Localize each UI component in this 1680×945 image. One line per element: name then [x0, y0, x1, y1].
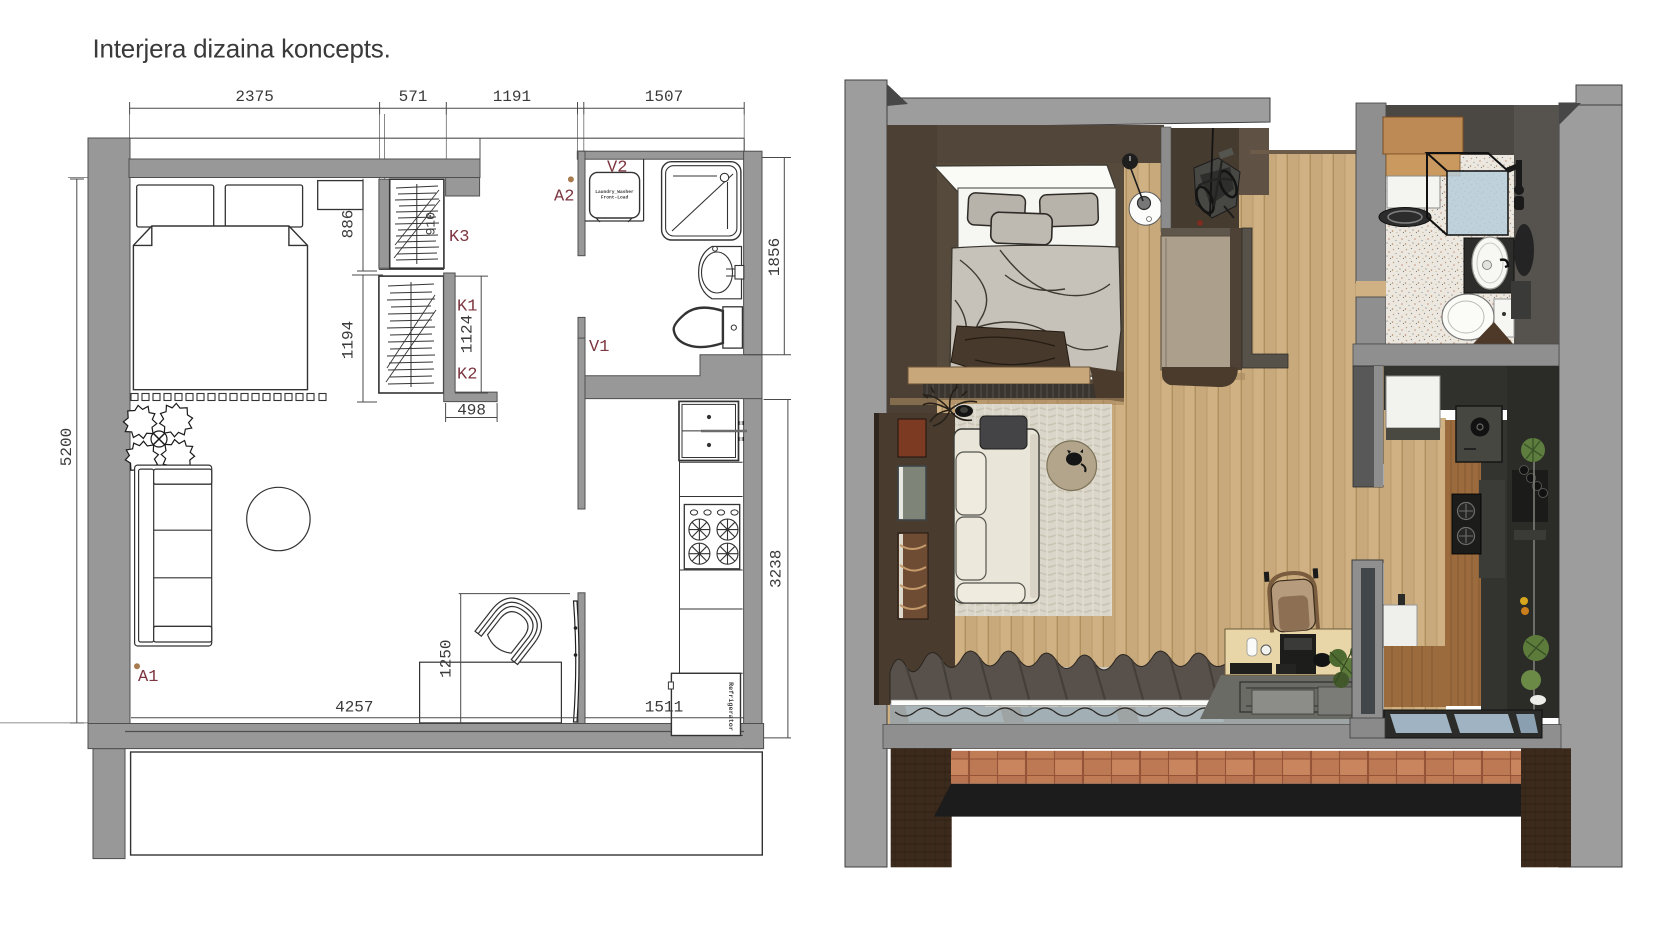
svg-text:4257: 4257 — [335, 699, 373, 717]
svg-text:1124: 1124 — [459, 315, 477, 353]
svg-text:1511: 1511 — [645, 699, 683, 717]
svg-text:5200: 5200 — [58, 428, 76, 466]
svg-text:1507: 1507 — [645, 88, 683, 106]
svg-text:Refrigerator: Refrigerator — [726, 682, 734, 731]
svg-text:2375: 2375 — [235, 88, 273, 106]
svg-text:1856: 1856 — [766, 238, 784, 276]
svg-text:V1: V1 — [589, 338, 609, 357]
svg-text:1194: 1194 — [340, 321, 358, 359]
svg-text:K2: K2 — [457, 366, 477, 385]
svg-text:Laundry_Washer: Laundry_Washer — [595, 189, 634, 195]
svg-text:K3: K3 — [449, 228, 469, 247]
svg-text:571: 571 — [399, 88, 428, 106]
svg-text:Front-Load: Front-Load — [601, 195, 629, 201]
svg-text:Interjera dizaina koncepts.: Interjera dizaina koncepts. — [93, 34, 391, 64]
svg-text:A1: A1 — [138, 668, 158, 687]
svg-text:886: 886 — [340, 210, 358, 239]
svg-text:910: 910 — [423, 212, 438, 235]
svg-text:3238: 3238 — [768, 550, 786, 588]
svg-text:1250: 1250 — [438, 639, 456, 677]
svg-text:498: 498 — [457, 402, 486, 420]
svg-text:K1: K1 — [457, 298, 477, 317]
svg-text:1191: 1191 — [493, 88, 531, 106]
svg-text:A2: A2 — [554, 188, 574, 207]
